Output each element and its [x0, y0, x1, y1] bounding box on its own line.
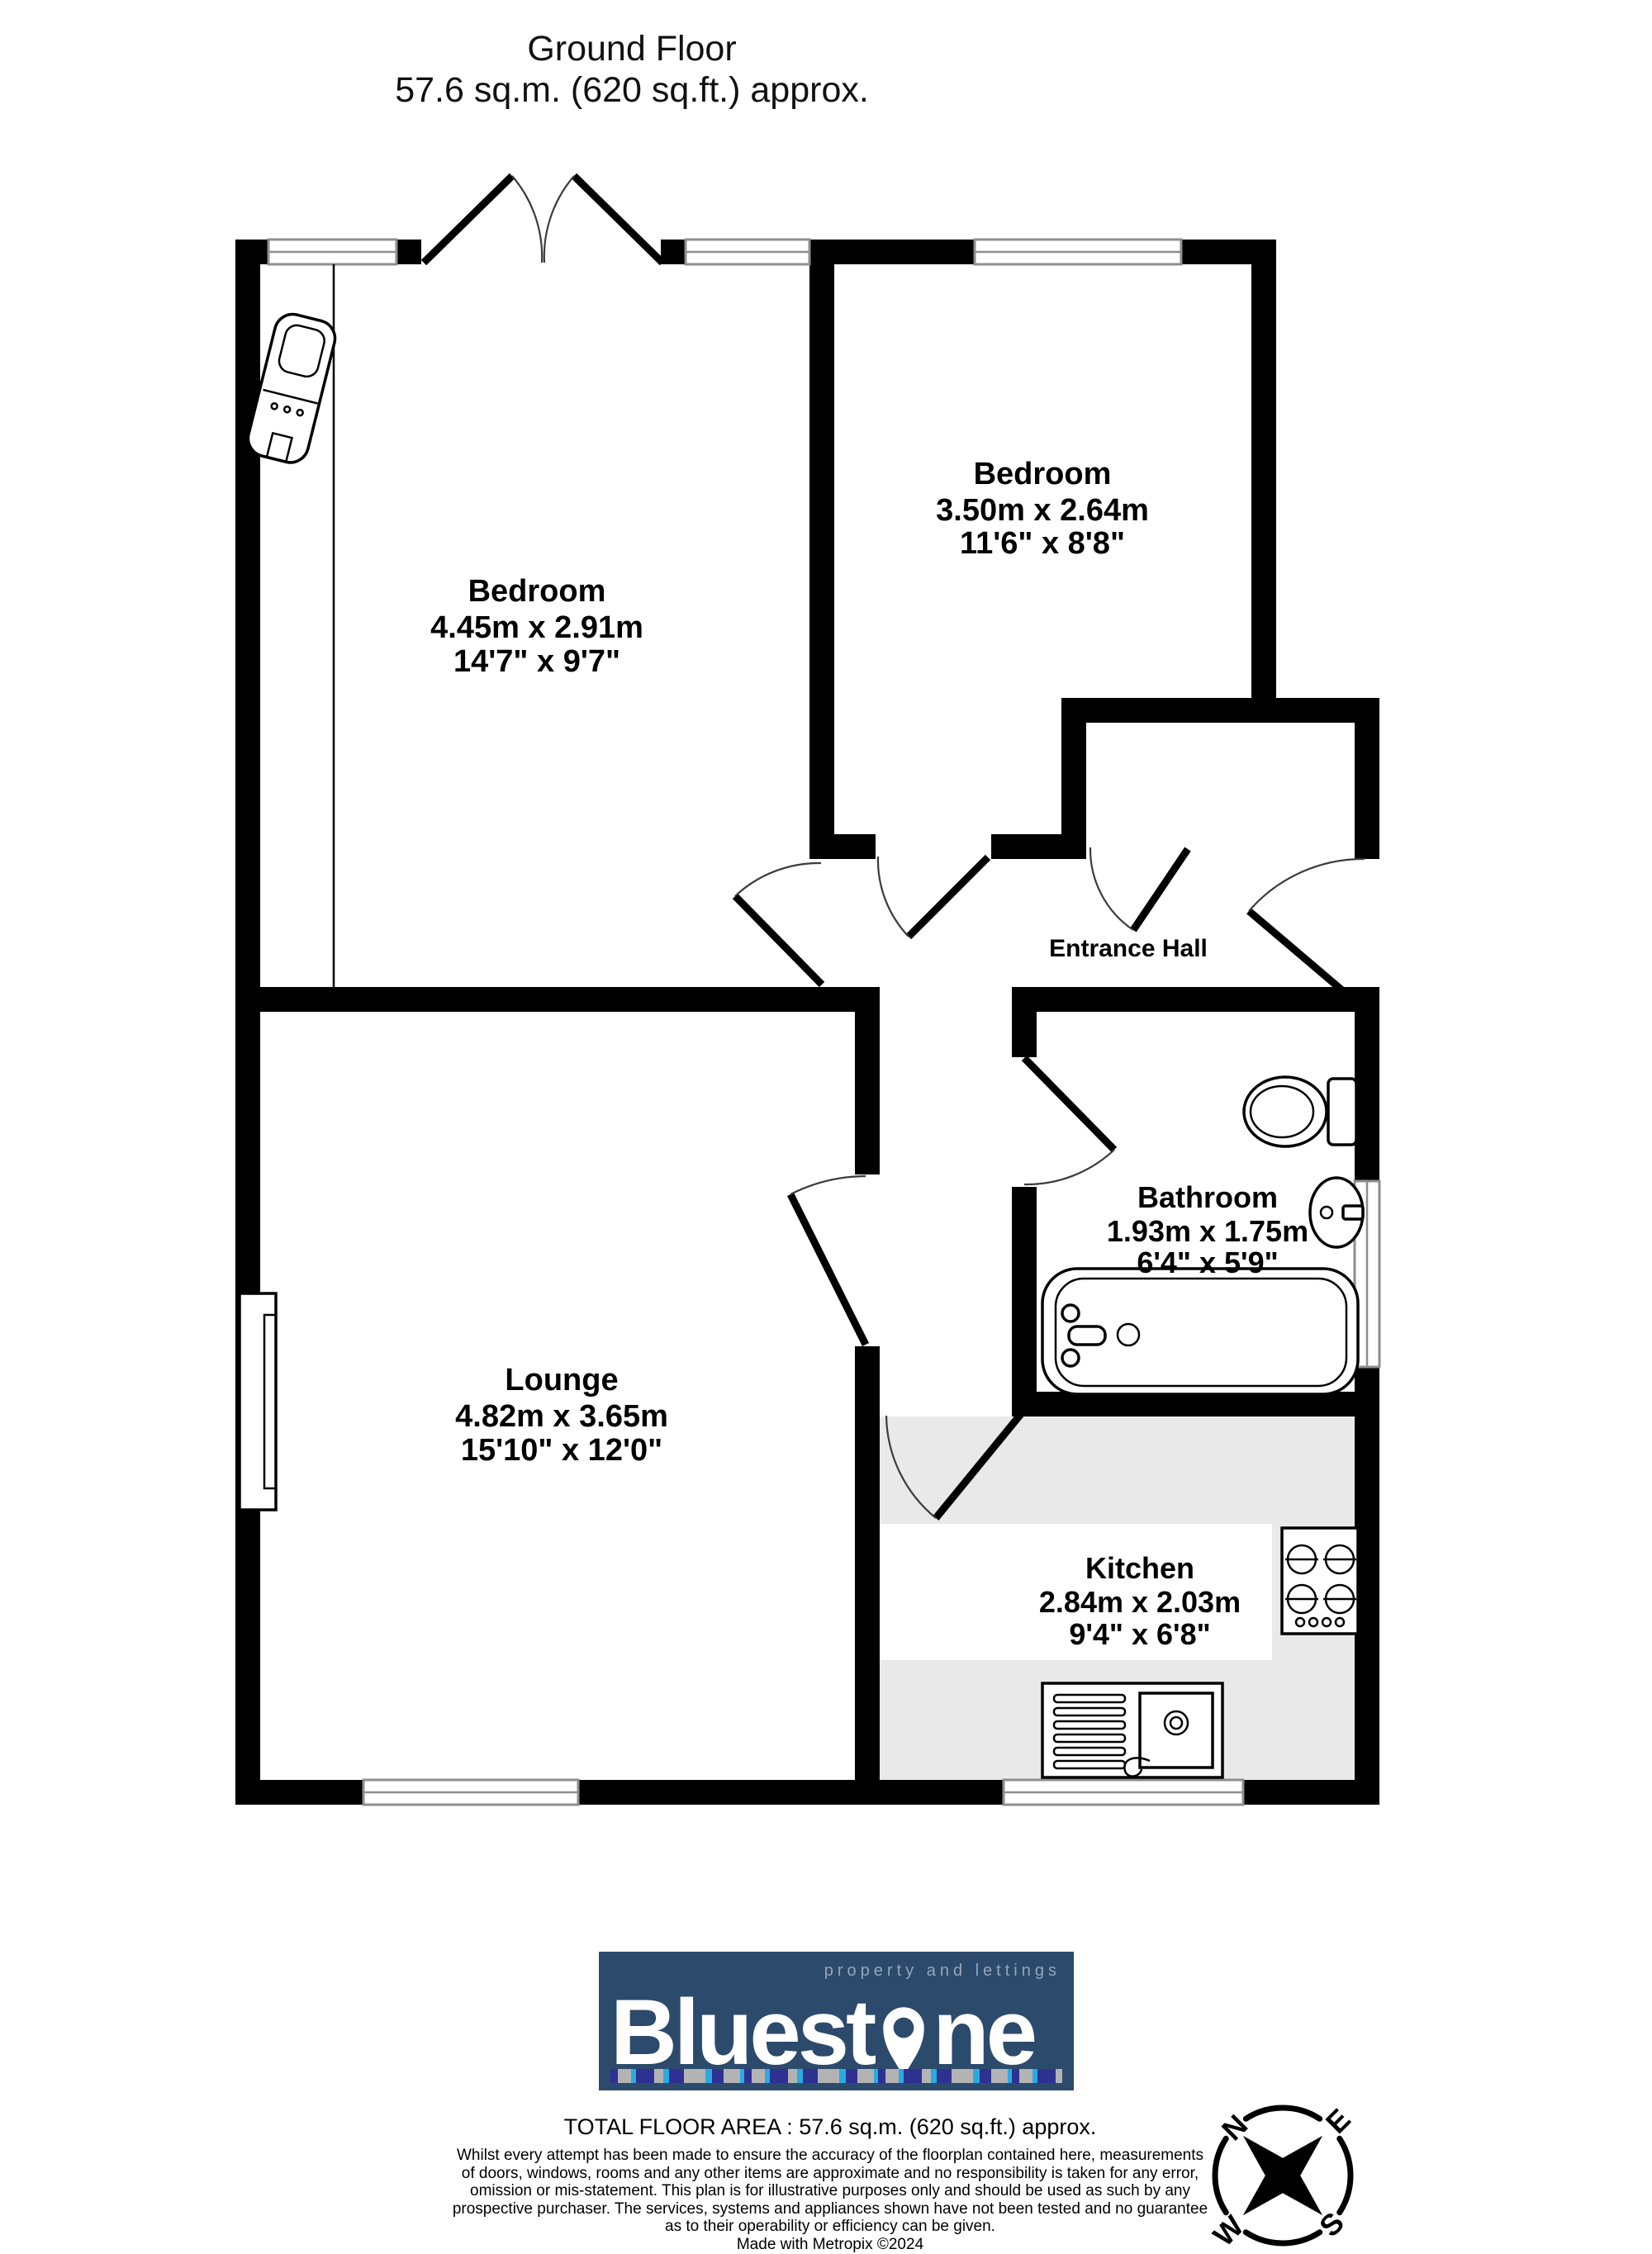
entrance-hall-label: Entrance Hall	[1049, 935, 1208, 962]
logo-stripe	[610, 2069, 1062, 2083]
logo-tagline: property and lettings	[824, 1962, 1061, 1981]
logo-brand: Bluest ne	[610, 1995, 1034, 2071]
bathroom-imperial: 6'4" x 5'9"	[1137, 1246, 1278, 1279]
french-door	[424, 176, 662, 263]
logo-brand-pre: Bluest	[610, 1995, 873, 2071]
disclaimer-line: Whilst every attempt has been made to en…	[0, 2147, 1652, 2165]
bedroom1-metric: 4.45m x 2.91m	[430, 610, 643, 645]
credit-line: Made with Metropix ©2024	[0, 2236, 1652, 2254]
window	[686, 240, 809, 264]
disclaimer-line: omission or mis-statement. This plan is …	[0, 2182, 1652, 2200]
agency-logo: property and lettings Bluest ne	[599, 1952, 1074, 2090]
bedroom1-imperial: 14'7" x 9'7"	[453, 644, 620, 679]
window	[268, 240, 396, 264]
bedroom2-door	[878, 857, 988, 937]
bathroom-sink-icon	[1310, 1178, 1363, 1247]
kitchen-label: Kitchen	[1085, 1551, 1194, 1585]
toilet-icon	[1244, 1077, 1356, 1146]
fireplace-icon	[240, 1293, 276, 1510]
bathroom-metric: 1.93m x 1.75m	[1107, 1214, 1308, 1248]
total-floor-area: TOTAL FLOOR AREA : 57.6 sq.m. (620 sq.ft…	[0, 2114, 1652, 2140]
bathroom-label: Bathroom	[1137, 1180, 1278, 1214]
window	[975, 240, 1181, 264]
logo-brand-post: ne	[933, 1995, 1034, 2071]
disclaimer-line: of doors, windows, rooms and any other i…	[0, 2165, 1652, 2183]
bedroom1-label: Bedroom	[468, 574, 606, 609]
kitchen-imperial: 9'4" x 6'8"	[1069, 1617, 1210, 1651]
walls	[235, 240, 1379, 1805]
bathtub-icon	[1042, 1269, 1358, 1394]
bathroom-door	[1024, 1058, 1114, 1184]
kitchen-sink-icon	[1042, 1683, 1222, 1777]
kitchen-metric: 2.84m x 2.03m	[1039, 1585, 1241, 1619]
hob-icon	[1282, 1528, 1358, 1634]
bedroom1-door	[735, 863, 822, 985]
floorplan-page: Ground Floor 57.6 sq.m. (620 sq.ft.) app…	[0, 0, 1652, 2254]
bedroom2-metric: 3.50m x 2.64m	[936, 493, 1149, 528]
hall-cupboard-door	[1090, 847, 1188, 930]
disclaimer: Whilst every attempt has been made to en…	[0, 2147, 1652, 2253]
window	[1004, 1780, 1243, 1805]
disclaimer-line: prospective purchaser. The services, sys…	[0, 2200, 1652, 2218]
bedroom2-label: Bedroom	[974, 457, 1112, 491]
bedroom2-imperial: 11'6" x 8'8"	[960, 526, 1125, 561]
lounge-imperial: 15'10" x 12'0"	[461, 1433, 662, 1468]
front-door	[1249, 859, 1365, 1009]
lounge-label: Lounge	[505, 1363, 618, 1397]
window	[363, 1780, 578, 1805]
lounge-door	[790, 1176, 866, 1345]
lounge-metric: 4.82m x 3.65m	[455, 1399, 668, 1434]
disclaimer-line: as to their operability or efficiency ca…	[0, 2218, 1652, 2236]
floorplan-drawing: Bedroom 4.45m x 2.91m 14'7" x 9'7" Bedro…	[0, 0, 1652, 2254]
